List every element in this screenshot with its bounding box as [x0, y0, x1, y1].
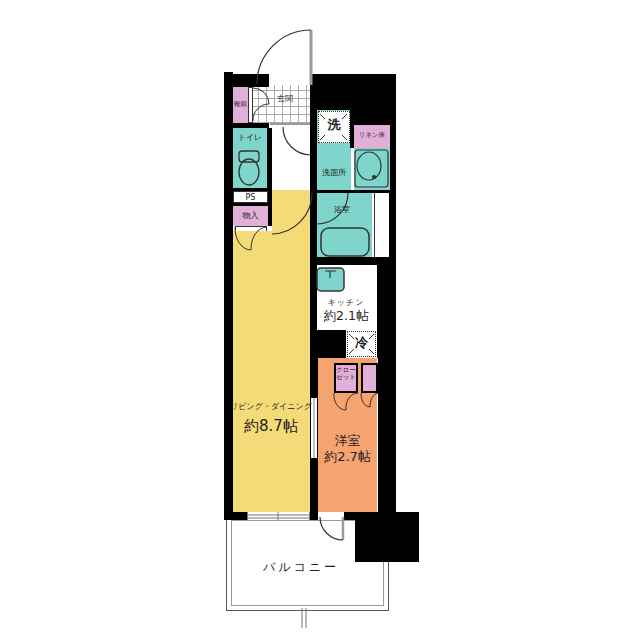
balcony-label: バルコニー — [246, 561, 356, 575]
wall-right-upper — [390, 125, 396, 190]
bathroom — [317, 193, 372, 257]
wall-top-left — [224, 74, 269, 87]
wall-ps-bottom — [233, 203, 272, 206]
bath-side-space — [374, 193, 390, 257]
storage-label: 物入 — [233, 211, 268, 220]
kitchen-sink-icon — [317, 268, 344, 291]
wall-left — [224, 72, 233, 520]
wall-kitchen-corner — [310, 330, 346, 358]
washer-label: 洗 — [318, 118, 350, 133]
genkan-label: 玄関 — [260, 94, 310, 103]
floor-plan: 玄関 靴箱 トイレ PS 物入 洗 リネン庫 洗面所 浴室 キッチン 約2.1帖… — [0, 0, 640, 640]
bedroom-door-gap — [318, 512, 344, 520]
vanity-area — [354, 148, 390, 190]
bathroom-label: 浴室 — [317, 205, 367, 214]
shoe-box-door — [248, 87, 253, 123]
wall-top-right — [311, 74, 396, 110]
wall-right-bath — [389, 190, 396, 260]
living-dining-size-label: 約8.7帖 — [230, 418, 312, 435]
washroom-door-arc — [283, 127, 311, 155]
living-dining-upper — [272, 190, 310, 231]
wall-ps-top — [233, 188, 272, 191]
wall-hall-vertical — [310, 85, 317, 330]
closet-label-line2: ゼット — [336, 373, 356, 381]
closet-right — [361, 363, 378, 393]
fridge-label: 冷 — [347, 336, 376, 351]
toilet-label: トイレ — [233, 133, 267, 142]
wall-shoebox-toilet — [233, 123, 269, 128]
wall-bath-kitchen — [310, 257, 396, 265]
shoe-box-label: 靴箱 — [233, 101, 248, 108]
wall-above-linen — [352, 110, 396, 125]
pipe-space-label: PS — [233, 193, 268, 202]
living-dining — [233, 231, 310, 512]
structure-block — [355, 512, 419, 562]
wall-right-bedroom — [378, 358, 396, 513]
kitchen-label: キッチン — [317, 298, 375, 307]
wall-washer-linen — [350, 110, 354, 148]
wall-ps-right — [268, 188, 272, 226]
wall-washroom-bath — [317, 190, 390, 193]
living-window-gap — [247, 512, 310, 520]
linen-label: リネン庫 — [354, 132, 390, 139]
balcony-divider — [302, 608, 306, 628]
kitchen-size-label: 約2.1帖 — [315, 309, 377, 323]
living-dining-label: リビング・ダイニング — [230, 402, 312, 411]
genkan-floor — [250, 85, 310, 123]
wall-right-kitchen — [377, 260, 396, 358]
wall-toilet-hall — [267, 128, 272, 190]
bedroom-size-label: 約2.7帖 — [315, 450, 380, 465]
bedroom-label: 洋室 — [318, 434, 377, 449]
closet-label: クロー ゼット — [334, 367, 358, 382]
washroom-label: 洗面所 — [317, 168, 351, 177]
